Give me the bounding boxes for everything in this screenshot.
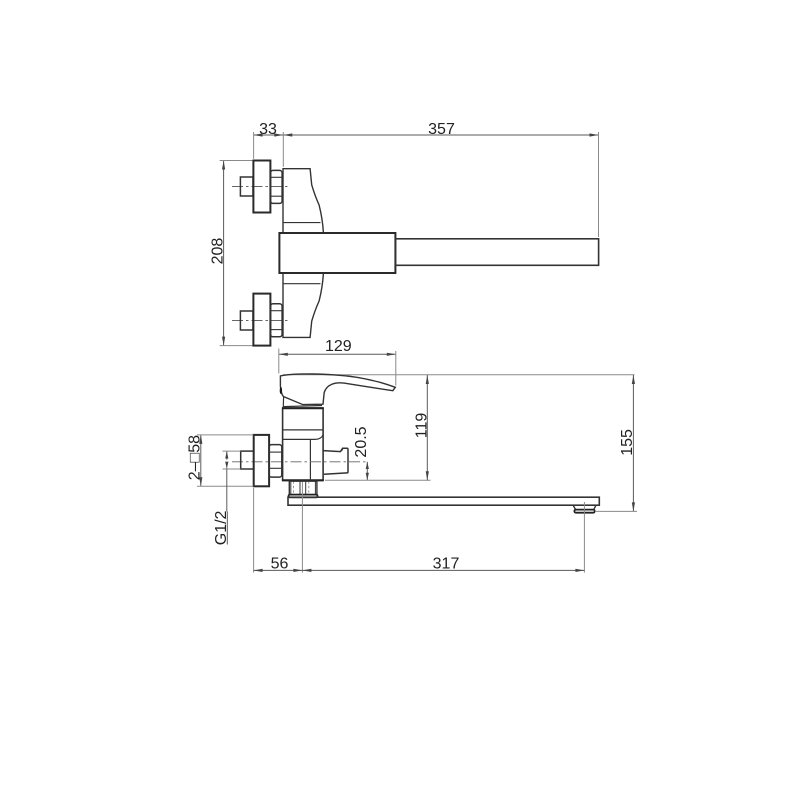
svg-text:20.5: 20.5 <box>353 426 370 457</box>
svg-text:119: 119 <box>414 413 431 439</box>
svg-text:56: 56 <box>271 555 289 572</box>
svg-text:317: 317 <box>433 555 460 572</box>
svg-text:129: 129 <box>325 338 352 355</box>
